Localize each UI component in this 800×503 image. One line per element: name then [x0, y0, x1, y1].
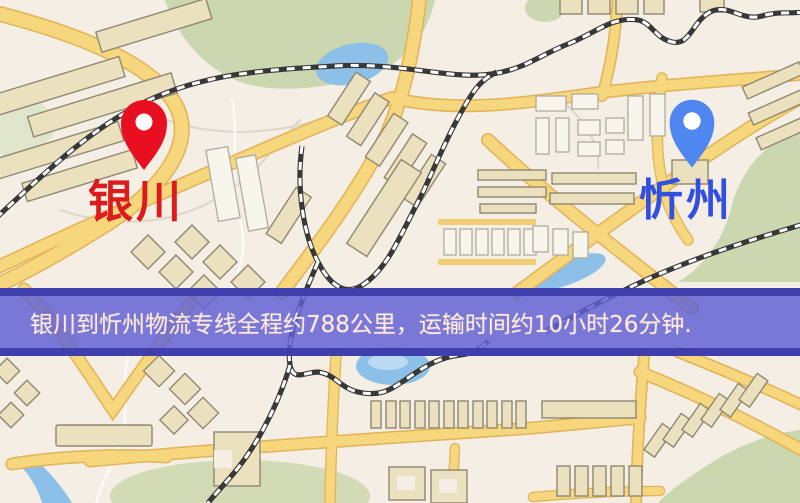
route-info-banner: 银川到忻州物流专线全程约788公里，运输时间约10小时26分钟.: [0, 288, 800, 356]
map-canvas: [0, 0, 800, 503]
route-info-text: 银川到忻州物流专线全程约788公里，运输时间约10小时26分钟.: [0, 305, 692, 339]
origin-city-label: 银川: [88, 179, 184, 224]
destination-city-label: 忻州: [639, 179, 733, 223]
map-screenshot: 银川 忻州 银川到忻州物流专线全程约788公里，运输时间约10小时26分钟.: [0, 0, 800, 503]
